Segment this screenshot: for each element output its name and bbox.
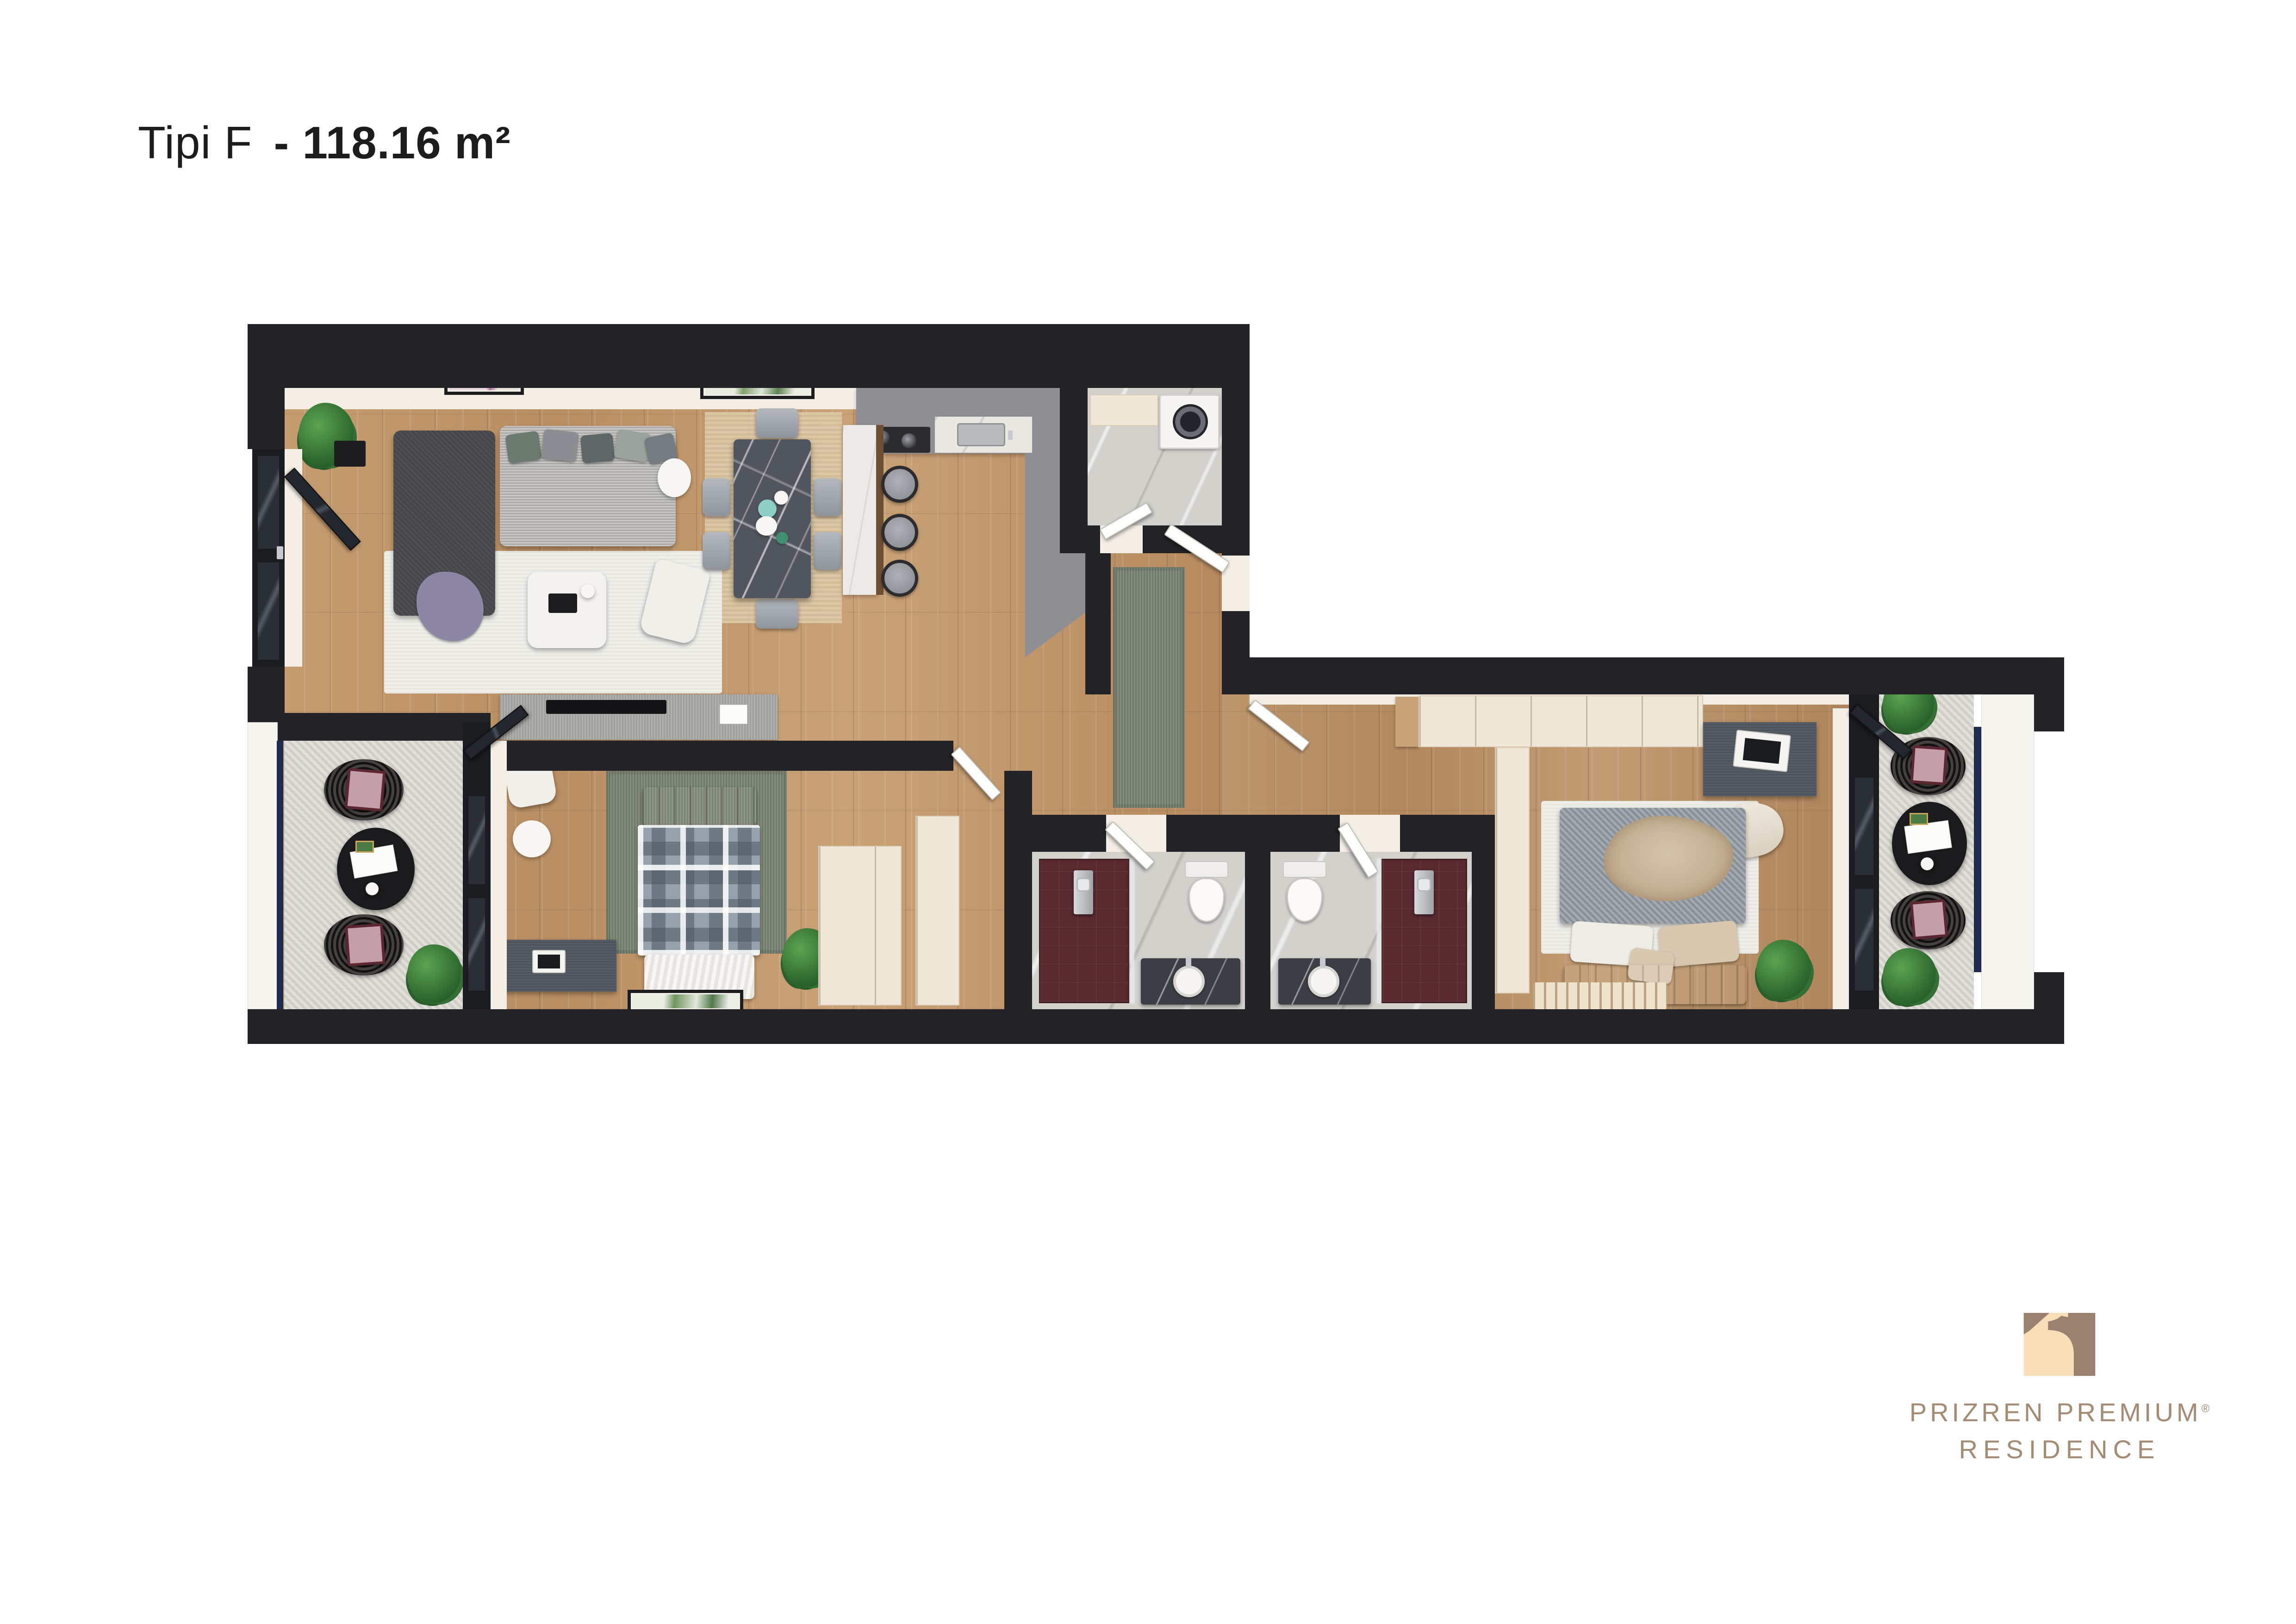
kitchen-sink [957, 423, 1005, 446]
bedroom2-bed-plaid-duvet [638, 825, 760, 956]
bathroom2-cistern [1283, 861, 1326, 878]
right-balcony-glass-rail [1974, 727, 1981, 972]
wall-baths-top-a [1032, 815, 1106, 852]
bathroom1-shower-head [1076, 878, 1090, 892]
dining-chair-left [703, 478, 730, 516]
registered-mark: ® [2202, 1402, 2210, 1415]
bathroom2-shower-head [1417, 878, 1431, 892]
right-balcony-chair-cushion [1910, 899, 1948, 940]
bathroom2-basin [1308, 966, 1339, 997]
dining-plate-small [774, 491, 788, 505]
bedroom2-wardrobe [818, 846, 902, 1006]
tv [546, 700, 666, 714]
hallway-runner-rug [1113, 567, 1185, 808]
master-computer-screen [1743, 738, 1781, 764]
cooking-pot [902, 433, 916, 448]
plan-type-label: Tipi F [138, 117, 252, 168]
sofa-cushion [580, 433, 615, 463]
left-balcony-chair-cushion [344, 768, 386, 812]
coffee-table-plate [581, 584, 595, 598]
brand-subtitle: RESIDENCE [1851, 1434, 2268, 1464]
master-wood-cabinet [1395, 697, 1419, 747]
wall-bedroom2-right [1004, 771, 1032, 1009]
wall-hall-left [1085, 553, 1111, 694]
bedroom2-laptop-screen [538, 955, 560, 968]
left-balcony-chair-cushion [345, 923, 386, 967]
master-window-sill [1833, 708, 1849, 1009]
side-table-round [658, 458, 691, 497]
brand-name-text: PRIZREN PREMIUM [1910, 1398, 2202, 1427]
wall-right-stub-bottom [2034, 972, 2064, 1009]
master-slat-mat [1533, 982, 1667, 1009]
right-balcony-ledge [1981, 694, 2034, 1009]
wall-left-upper [248, 324, 285, 449]
brand-logo-icon [2023, 1313, 2096, 1376]
dining-chair-bottom [756, 599, 798, 629]
living-plant-pot [334, 441, 366, 467]
plan-title: Tipi F - 118.16 m² [138, 117, 511, 169]
living-window-glass [258, 456, 279, 549]
wall-bath2-right [1472, 852, 1495, 1009]
kitchen-faucet [1008, 431, 1013, 440]
wall-right-entry-stub [1222, 611, 1250, 657]
bar-stool [881, 514, 918, 551]
wall-between-baths [1245, 852, 1270, 1009]
bedroom2-headboard [642, 787, 756, 826]
left-balcony-tray [355, 841, 374, 853]
left-balcony-glass-rail [277, 741, 283, 1009]
island-wood-edge [876, 425, 884, 595]
plan-area-label: - 118.16 m² [274, 117, 511, 168]
right-balcony-chair-cushion [1910, 745, 1948, 785]
wall-living-divider [491, 741, 953, 771]
dining-chair-right [814, 478, 841, 516]
dining-chair-top [756, 408, 798, 438]
wall-laundry-bottom-a [1060, 525, 1100, 553]
left-balcony-ledge [248, 722, 278, 1009]
bedroom2-side-table [513, 820, 551, 857]
wall-balcony-left-top [278, 713, 491, 741]
washing-machine [1159, 394, 1220, 449]
sofa-cushion [505, 431, 542, 463]
right-balcony-tray [1910, 813, 1928, 825]
console-papers [720, 705, 747, 724]
wall-right-upper [1222, 324, 1250, 556]
living-window-glass [258, 562, 279, 660]
wall-laundry-left [1060, 388, 1088, 527]
bar-stool [881, 466, 918, 503]
wall-top [248, 324, 1250, 388]
right-balcony-cup [1921, 857, 1934, 870]
wall-baths-top-c [1400, 815, 1495, 852]
master-window-glass [1855, 889, 1873, 991]
wall-master-wing-top [1222, 657, 2064, 694]
dining-plate-teal [758, 500, 777, 518]
bathroom1-shower-column [1074, 870, 1093, 914]
dining-plate-green [776, 532, 788, 544]
bathroom1-cistern [1185, 861, 1228, 878]
master-window-glass [1855, 778, 1873, 875]
dining-chair-left [703, 532, 730, 570]
bedroom2-window-glass [468, 898, 485, 991]
bedroom2-window-sill [491, 741, 507, 1009]
kitchen-island [843, 425, 877, 595]
coffee-table-tray [548, 593, 577, 613]
sofa-cushion [541, 429, 579, 462]
bathroom2-shower-glass [1377, 859, 1381, 1003]
bathroom1-shower-glass [1131, 859, 1134, 1003]
bathroom2-faucet [1320, 957, 1325, 968]
brand-subtitle-text: RESIDENCE [1959, 1435, 2160, 1464]
dining-chair-right [814, 532, 841, 570]
laundry-counter [1090, 394, 1158, 426]
washer-drum [1173, 404, 1208, 439]
bedroom2-window-glass [468, 796, 485, 884]
living-window-handle [277, 546, 283, 559]
bathroom1-faucet [1186, 957, 1191, 968]
left-balcony-cup [366, 882, 379, 895]
dining-platter [756, 516, 777, 536]
floor-plan-page: Tipi F - 118.16 m² [0, 0, 2296, 1624]
bathroom1-basin [1173, 966, 1205, 997]
wall-right-stub-top [2034, 694, 2064, 731]
bedroom2-tall-cabinet [915, 816, 959, 1006]
wall-bottom [248, 1009, 2064, 1044]
brand-name: PRIZREN PREMIUM® [1851, 1397, 2268, 1427]
master-closet-return [1495, 747, 1530, 993]
bar-stool [881, 560, 918, 597]
bathroom2-shower-column [1414, 870, 1434, 914]
master-wardrobe [1419, 695, 1703, 747]
wall-baths-top-b [1166, 815, 1340, 852]
bedroom2-floor-art-photo [632, 994, 739, 1008]
